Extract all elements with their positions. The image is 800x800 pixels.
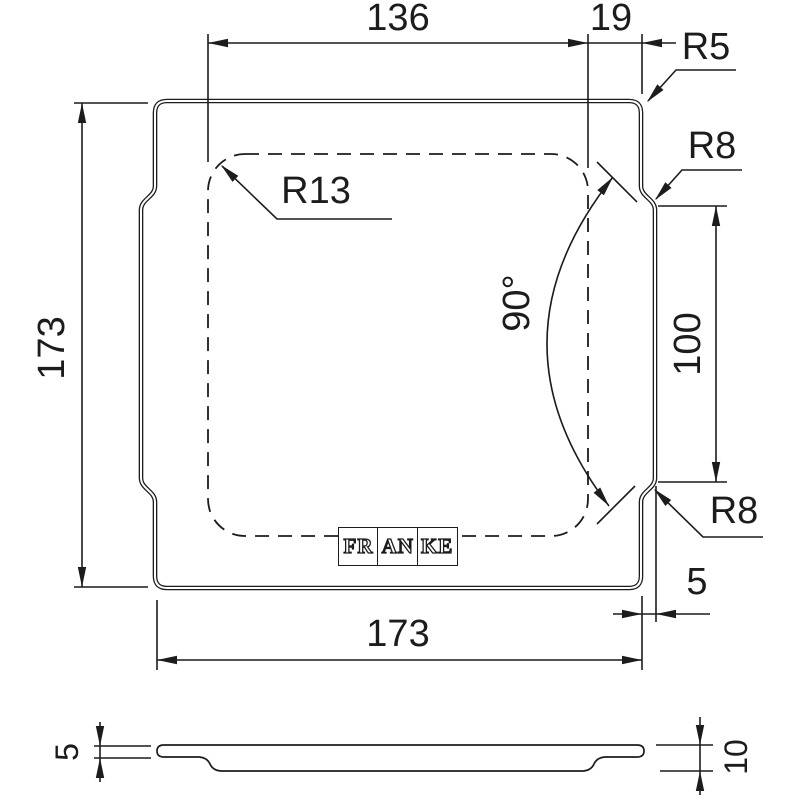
dimension-lines	[82, 43, 716, 795]
drawing-linework	[0, 0, 800, 800]
franke-logo-segment: FR	[338, 527, 379, 566]
dimension-arrowheads	[78, 39, 720, 791]
angle-arc	[547, 162, 637, 524]
dim-label-edge-thickness: 5	[51, 743, 83, 761]
radius-label-notch-top: R8	[688, 127, 737, 165]
dim-label-total-thickness: 10	[720, 739, 752, 775]
plate-outline	[141, 101, 655, 588]
franke-logo-segment: AN	[377, 527, 418, 566]
radius-leaders	[221, 70, 763, 537]
radius-label-notch-bottom: R8	[710, 492, 759, 530]
inner-hidden-edge	[208, 154, 588, 536]
dim-label-corner-offset: 19	[590, 0, 632, 37]
dim-label-notch-height: 100	[669, 312, 707, 375]
radius-label-outer-corner: R5	[682, 28, 731, 66]
technical-drawing-page: 136 19 R5 R8 R13 90° 100 R8 5 173 173 5 …	[0, 0, 800, 800]
radius-label-inner-corner: R13	[281, 172, 351, 210]
dim-label-edge-offset: 5	[686, 563, 707, 601]
angle-label: 90°	[498, 274, 536, 331]
dim-label-outer-width: 173	[366, 615, 429, 653]
dim-label-outer-height: 173	[33, 316, 71, 379]
franke-logo: FR AN KE	[338, 527, 456, 566]
dim-label-inner-width: 136	[366, 0, 429, 37]
side-profile	[157, 745, 644, 771]
franke-logo-segment: KE	[417, 527, 458, 566]
